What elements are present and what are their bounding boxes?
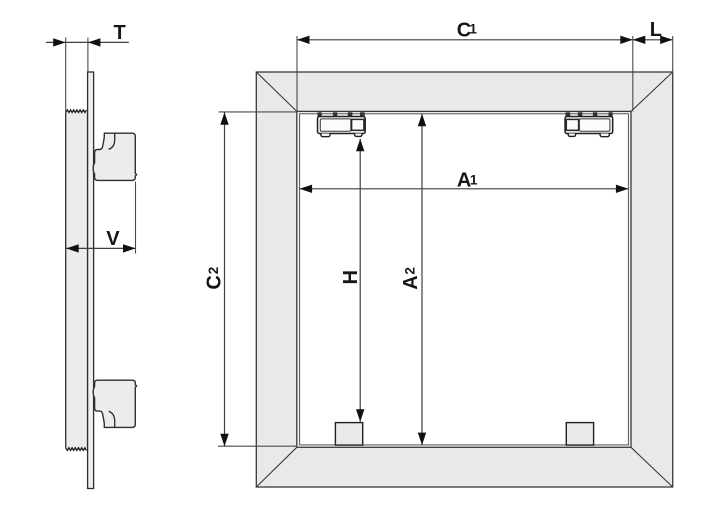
svg-text:H: H — [340, 270, 362, 284]
svg-text:A: A — [400, 275, 422, 289]
svg-text:T: T — [114, 22, 126, 44]
svg-text:C: C — [204, 275, 226, 289]
svg-text:V: V — [106, 228, 120, 250]
svg-text:2: 2 — [206, 267, 221, 275]
svg-text:2: 2 — [402, 267, 417, 275]
svg-text:1: 1 — [470, 173, 478, 188]
svg-text:1: 1 — [469, 22, 477, 37]
svg-text:L: L — [650, 19, 662, 41]
